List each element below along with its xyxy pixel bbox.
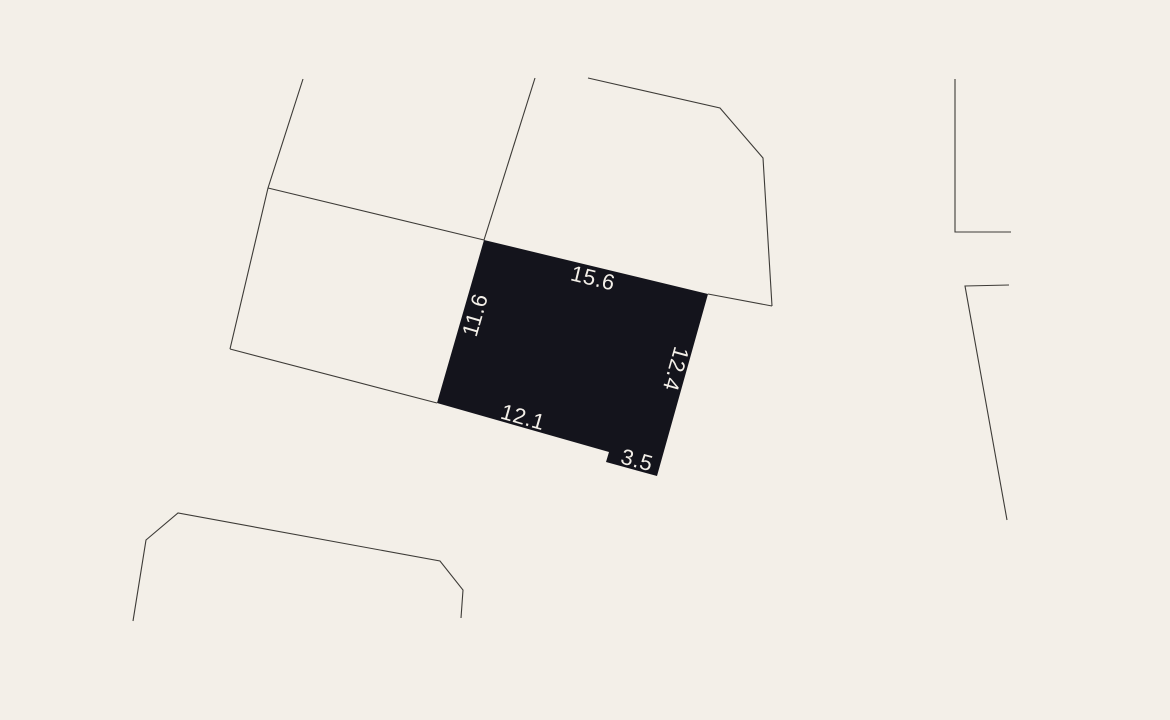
cadastral-map-viewport: 15.6 11.6 12.4 12.1 3.5 — [0, 0, 1170, 720]
cadastral-map: 15.6 11.6 12.4 12.1 3.5 — [0, 0, 1170, 720]
